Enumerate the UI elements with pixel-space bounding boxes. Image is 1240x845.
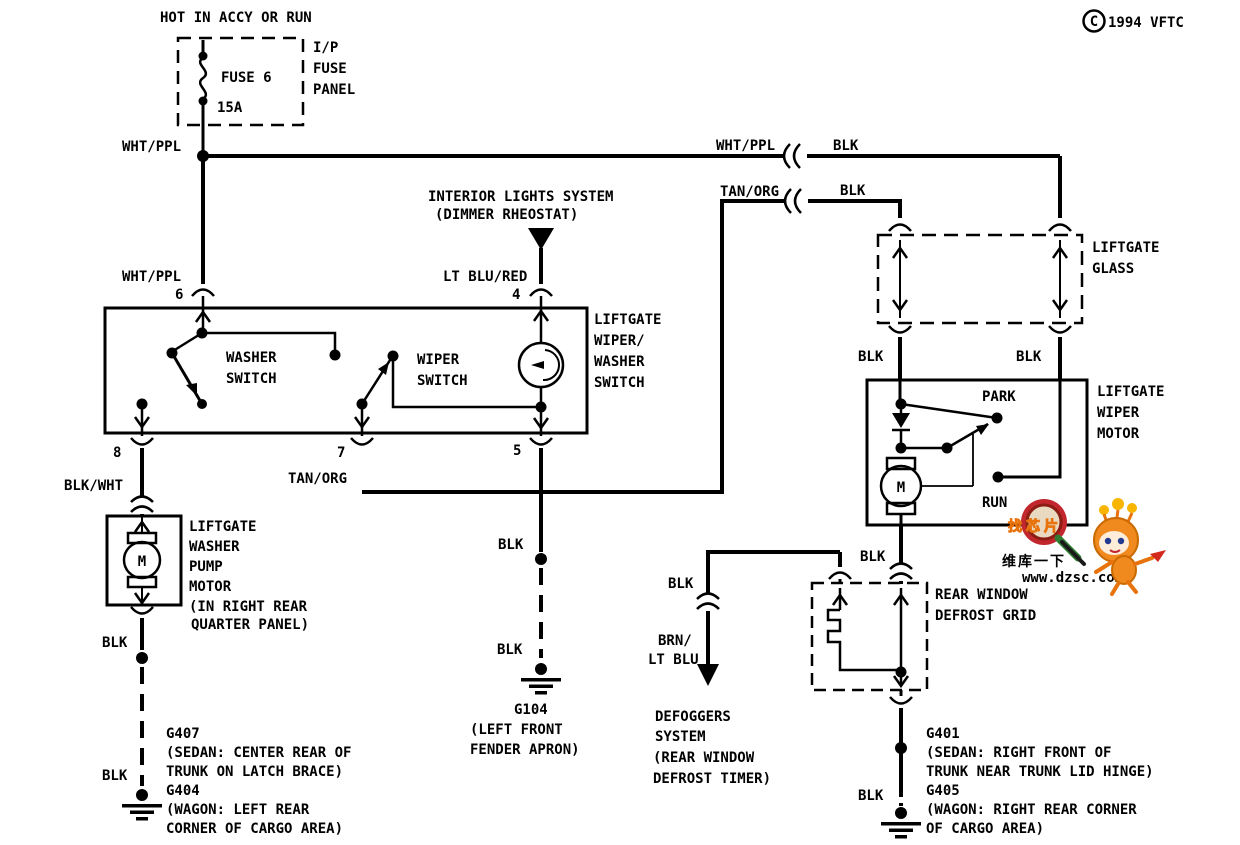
g401-label-6: OF CARGO AREA) <box>926 821 1044 837</box>
copyright-text: 1994 VFTC <box>1108 15 1184 31</box>
g401-label-4: G405 <box>926 783 960 799</box>
fuse-element-icon <box>200 58 206 99</box>
park-contact-dot <box>992 413 1003 424</box>
pump-inline-connector <box>131 497 153 513</box>
pin5-ground-branch: TAN/ORG BLK BLK G104 (LEFT FRONT FENDER … <box>288 448 580 758</box>
g401-label-5: (WAGON: RIGHT REAR CORNER <box>926 802 1137 818</box>
defoggers-label-3: (REAR WINDOW <box>653 750 755 766</box>
pump-gnd-dot <box>136 652 148 664</box>
fuse-panel-label-3: PANEL <box>313 82 355 98</box>
grid-exit-connector <box>890 697 912 704</box>
washer-arm-arrowhead <box>186 383 197 396</box>
park-label: PARK <box>982 389 1016 405</box>
g407-label-6: CORNER OF CARGO AREA) <box>166 821 343 837</box>
wire-label-blk-g404: BLK <box>102 768 128 784</box>
run-label: RUN <box>982 495 1007 511</box>
washer-stub-dot <box>330 350 341 361</box>
pin5-connector <box>530 438 552 445</box>
pin7-number: 7 <box>337 445 345 461</box>
pin7-connector <box>351 438 373 445</box>
pin4-connector <box>530 290 552 297</box>
fuse-panel-label-2: FUSE <box>313 61 347 77</box>
system-arrow-icon <box>528 228 554 250</box>
interior-lights-label-1: INTERIOR LIGHTS SYSTEM <box>428 189 613 205</box>
switch-box <box>105 308 587 433</box>
glass-label-1: LIFTGATE <box>1092 240 1159 256</box>
wire-label-blk-wht: BLK/WHT <box>64 478 123 494</box>
interior-lights-branch: INTERIOR LIGHTS SYSTEM (DIMMER RHEOSTAT)… <box>428 189 613 285</box>
glass-label-2: GLASS <box>1092 261 1134 277</box>
switch-box-label-3: WASHER <box>594 354 645 370</box>
tan-org-wire <box>362 201 784 492</box>
g104-label-1: G104 <box>514 702 548 718</box>
washer-switch-label-1: WASHER <box>226 350 277 366</box>
g401-label-1: G401 <box>926 726 960 742</box>
glass-left-bottom-connector <box>889 326 911 333</box>
pin6-number: 6 <box>175 287 183 303</box>
wire-label-brn-ltblu-2: LT BLU <box>648 652 699 668</box>
wiper-switch-label-2: SWITCH <box>417 373 468 389</box>
wire-label-tan-org-pin7: TAN/ORG <box>288 471 347 487</box>
glass-right-bottom-connector <box>1049 326 1071 333</box>
wire-label-blk-pump: BLK <box>102 635 128 651</box>
grid-left-connector <box>829 573 851 580</box>
g407-label-2: (SEDAN: CENTER REAR OF <box>166 745 351 761</box>
wiper-motor-label-2: WIPER <box>1097 405 1140 421</box>
defog-inline-connector <box>697 594 719 610</box>
watermark: 找芯片 维库一下 www.dzsc.com <box>1002 498 1166 594</box>
wiper-motor-label-1: LIFTGATE <box>1097 384 1164 400</box>
pin5-junction-dot <box>535 553 547 565</box>
grid-label-1: REAR WINDOW <box>935 587 1028 603</box>
wire-label-blk-motor-gnd: BLK <box>860 549 886 565</box>
bulb-junction-dot <box>536 402 547 413</box>
pump-label-6: QUARTER PANEL) <box>191 617 309 633</box>
pin8-number: 8 <box>113 445 121 461</box>
ground-icon-g401 <box>881 807 921 839</box>
glass-right-top-connector <box>1049 225 1071 232</box>
liftgate-glass-assembly: LIFTGATE GLASS BLK BLK <box>858 225 1159 380</box>
wire-label-wht-ppl-right: WHT/PPL <box>716 138 775 154</box>
fuse-name-label: FUSE 6 <box>221 70 272 86</box>
g401-label-3: TRUNK NEAR TRUNK LID HINGE) <box>926 764 1154 780</box>
pump-label-4: MOTOR <box>189 579 232 595</box>
pump-label-1: LIFTGATE <box>189 519 256 535</box>
wiper-arm-arrowhead <box>378 362 389 375</box>
wire-label-tan-org-right: TAN/ORG <box>720 184 779 200</box>
washer-switch-label-2: SWITCH <box>226 371 277 387</box>
defog-horizontal-wire <box>708 552 840 594</box>
switch-box-label-4: SWITCH <box>594 375 645 391</box>
wiper-switch-label-1: WIPER <box>417 352 460 368</box>
wiring-diagram: HOT IN ACCY OR RUN FUSE 6 15A I/P FUSE P… <box>0 0 1240 840</box>
washer-switch-arm <box>172 353 202 404</box>
wire-label-wht-ppl-pin6: WHT/PPL <box>122 269 181 285</box>
fuse-panel-label-1: I/P <box>313 40 338 56</box>
park-cam-linkage <box>922 434 973 486</box>
g407-ground: G407 (SEDAN: CENTER REAR OF TRUNK ON LAT… <box>122 726 351 837</box>
switch-box-label-2: WIPER/ <box>594 333 645 349</box>
g401-label-2: (SEDAN: RIGHT FRONT OF <box>926 745 1111 761</box>
park-arm-arrowhead <box>976 424 989 435</box>
ground-icon-g404 <box>122 789 162 821</box>
park-contact-wire <box>901 404 997 418</box>
bulb-arrow-icon <box>531 361 544 369</box>
pin5-number: 5 <box>513 443 521 459</box>
wire-label-blk-right-2: BLK <box>840 183 866 199</box>
watermark-badge-text: 找芯片 <box>1008 518 1062 535</box>
pump-label-3: PUMP <box>189 559 223 575</box>
defoggers-label-4: DEFROST TIMER) <box>653 771 771 787</box>
watermark-brand-text: 维库一下 <box>1002 553 1066 570</box>
pin6-connector <box>192 290 214 297</box>
grid-label-2: DEFROST GRID <box>935 608 1036 624</box>
inline-connector-wht-ppl-blk <box>784 144 800 168</box>
diode-icon <box>892 413 910 428</box>
ground-icon-g104 <box>521 663 561 695</box>
wiper-motor-letter: M <box>897 480 905 496</box>
switch-assembly: 6 4 WASHER SWITCH WIPER SWITCH <box>105 287 661 461</box>
wire-label-blk-right-top: BLK <box>833 138 859 154</box>
defoggers-label-1: DEFOGGERS <box>655 709 731 725</box>
liftgate-glass-box <box>878 235 1082 323</box>
washer-stub-wire <box>202 333 335 351</box>
inline-connector-tan-org-blk <box>785 189 801 213</box>
defoggers-label-2: SYSTEM <box>655 729 706 745</box>
fuse-rating-label: 15A <box>217 100 243 116</box>
g407-label-3: TRUNK ON LATCH BRACE) <box>166 764 343 780</box>
hot-feed-label: HOT IN ACCY OR RUN <box>160 10 312 26</box>
wiper-motor-label-3: MOTOR <box>1097 426 1140 442</box>
copyright: C 1994 VFTC <box>1084 11 1184 32</box>
wire-label-blk-defog: BLK <box>668 576 694 592</box>
copyright-c: C <box>1090 14 1098 30</box>
wire-label-lt-blu-red: LT BLU/RED <box>443 269 527 285</box>
pump-label-5: (IN RIGHT REAR <box>189 599 308 615</box>
wire-label-wht-ppl-top: WHT/PPL <box>122 139 181 155</box>
g407-label-5: (WAGON: LEFT REAR <box>166 802 310 818</box>
wire-label-brn-ltblu-1: BRN/ <box>658 633 692 649</box>
g407-label-1: G407 <box>166 726 200 742</box>
pump-motor-letter: M <box>138 554 146 570</box>
defoggers-arrow-icon <box>697 664 719 686</box>
wire-label-blk-glass-left: BLK <box>858 349 884 365</box>
wire-label-blk-pin5-upper: BLK <box>498 537 524 553</box>
g104-label-2: (LEFT FRONT <box>470 722 563 738</box>
bulb-filament-icon <box>543 350 559 380</box>
pin4-number: 4 <box>512 287 520 303</box>
g407-label-4: G404 <box>166 783 200 799</box>
g104-label-3: FENDER APRON) <box>470 742 580 758</box>
interior-lights-label-2: (DIMMER RHEOSTAT) <box>435 207 578 223</box>
wire-label-blk-pin5-lower: BLK <box>497 642 523 658</box>
switch-box-label-1: LIFTGATE <box>594 312 661 328</box>
pump-bottom-connector <box>131 607 153 614</box>
pump-label-2: WASHER <box>189 539 240 555</box>
pin8-connector <box>131 438 153 445</box>
wire-label-blk-g405: BLK <box>858 788 884 804</box>
grid-element-icon <box>828 610 901 670</box>
fuse-circuit: HOT IN ACCY OR RUN FUSE 6 15A I/P FUSE P… <box>122 10 355 155</box>
watermark-url-text: www.dzsc.com <box>1022 570 1123 586</box>
tan-org-blk-wire <box>808 201 900 218</box>
wire-label-blk-glass-right: BLK <box>1016 349 1042 365</box>
grid-right-inline-connector <box>890 564 912 580</box>
glass-left-top-connector <box>889 225 911 232</box>
washer-arm-end-dot <box>197 399 207 409</box>
washer-contact-wire <box>173 333 202 351</box>
